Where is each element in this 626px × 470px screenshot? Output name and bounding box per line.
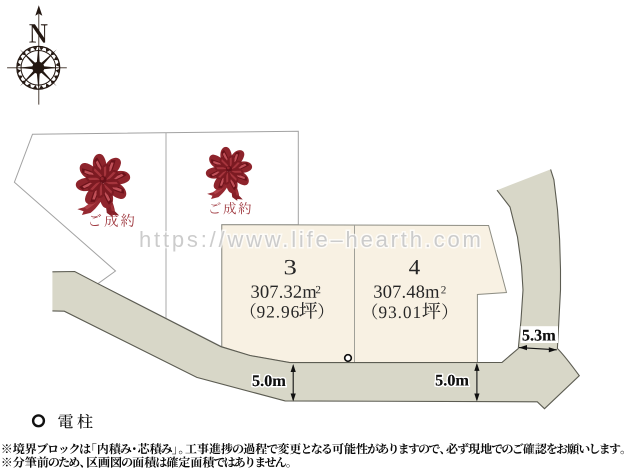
svg-text:https://www.life–hearth.com: https://www.life–hearth.com [139, 227, 484, 252]
